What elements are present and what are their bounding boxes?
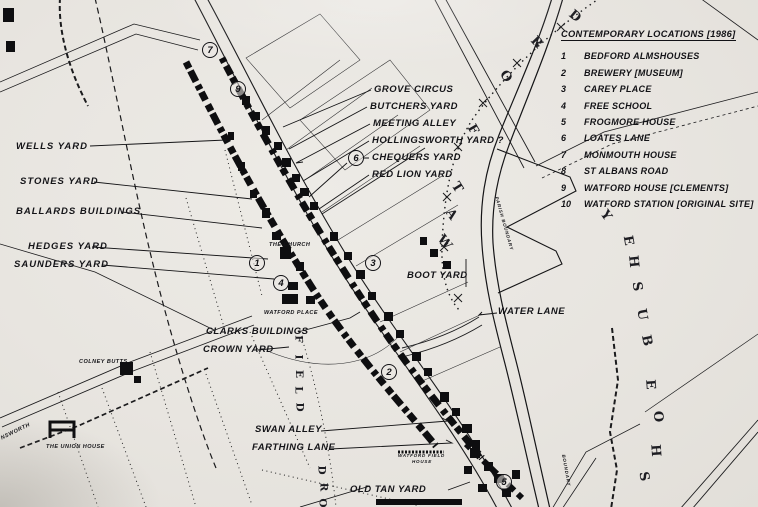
legend: CONTEMPORARY LOCATIONS [1986] 1BEDFORD A…	[561, 24, 758, 209]
legend-rows: 1BEDFORD ALMSHOUSES 2BREWERY [MUSEUM] 3C…	[561, 45, 758, 209]
label-union-house: THE UNION HOUSE	[46, 444, 105, 450]
legend-item-label: WATFORD STATION [ORIGINAL SITE]	[584, 199, 758, 209]
label-farthing-lane: FARTHING LANE	[252, 442, 335, 453]
legend-item: 6LOATES LANE	[561, 127, 758, 143]
legend-item-label: ST ALBANS ROAD	[584, 166, 758, 176]
label-meeting-alley: MEETING ALLEY	[373, 118, 456, 129]
label-saunders-yard: SAUNDERS YARD	[14, 259, 109, 270]
label-water-lane: WATER LANE	[498, 306, 565, 317]
map-letter-field-i: I	[292, 355, 304, 360]
legend-item-number: 2	[561, 68, 584, 78]
legend-item-label: CAREY PLACE	[584, 84, 758, 94]
legend-title: CONTEMPORARY LOCATIONS [1986]	[561, 29, 736, 41]
marker-circled-1: 1	[249, 255, 265, 271]
map-letter-ord-d: D	[316, 465, 328, 474]
marker-circled-2: 2	[381, 364, 397, 380]
label-boot-yard: BOOT YARD	[407, 270, 468, 281]
legend-item: 2BREWERY [MUSEUM]	[561, 61, 758, 77]
legend-item-label: MONMOUTH HOUSE	[584, 150, 758, 160]
map-letter-ord-o: O	[317, 498, 329, 507]
map-letter-bushey-h: H	[625, 255, 641, 269]
legend-item-number: 3	[561, 84, 584, 94]
legend-item-number: 8	[561, 166, 584, 176]
label-chequers-yard: CHEQUERS YARD	[372, 152, 461, 163]
legend-item: 4FREE SCHOOL	[561, 94, 758, 110]
label-watford-field: WATFORD FIELD	[398, 453, 445, 458]
legend-item-label: BREWERY [MUSEUM]	[584, 68, 758, 78]
legend-item-label: FREE SCHOOL	[584, 101, 758, 111]
legend-item: 1BEDFORD ALMSHOUSES	[561, 45, 758, 61]
label-butchers-yard: BUTCHERS YARD	[370, 101, 458, 112]
legend-item: 3CAREY PLACE	[561, 78, 758, 94]
label-watford-place: WATFORD PLACE	[264, 310, 318, 316]
legend-item-label: BEDFORD ALMSHOUSES	[584, 51, 758, 61]
legend-item-label: FROGMORE HOUSE	[584, 117, 758, 127]
legend-item: 9WATFORD HOUSE [CLEMENTS]	[561, 176, 758, 192]
map-letter-shoe-o: O	[650, 411, 665, 423]
legend-item-number: 6	[561, 133, 584, 143]
label-red-lion-yard: RED LION YARD	[372, 169, 453, 180]
label-hollingsworth-yard: HOLLINGSWORTH YARD ?	[372, 135, 504, 146]
legend-item-number: 4	[561, 101, 584, 111]
label-the-church: THE CHURCH	[269, 242, 310, 248]
marker-circled-4: 4	[273, 275, 289, 291]
marker-circled-9: 9	[230, 81, 246, 97]
marker-circled-6: 6	[348, 150, 364, 166]
label-hedges-yard: HEDGES YARD	[28, 241, 108, 252]
scanned-map: CONTEMPORARY LOCATIONS [1986] 1BEDFORD A…	[0, 0, 758, 507]
label-old-tan-yard: OLD TAN YARD	[350, 484, 426, 495]
legend-item-number: 7	[561, 150, 584, 160]
label-crown-yard: CROWN YARD	[203, 344, 274, 355]
marker-circled-7: 7	[202, 42, 218, 58]
marker-circled-5: 5	[496, 474, 512, 490]
map-letter-field-f: F	[293, 335, 305, 342]
legend-item-number: 1	[561, 51, 584, 61]
legend-item-label: LOATES LANE	[584, 133, 758, 143]
label-swan-alley: SWAN ALLEY	[255, 424, 322, 435]
label-colney-butts: COLNEY BUTTS	[79, 359, 128, 365]
legend-item: 8ST ALBANS ROAD	[561, 160, 758, 176]
legend-item-number: 10	[561, 199, 584, 209]
map-letter-field-d: D	[294, 402, 306, 411]
legend-item: 10WATFORD STATION [ORIGINAL SITE]	[561, 193, 758, 209]
legend-item: 5FROGMORE HOUSE	[561, 111, 758, 127]
legend-item-label: WATFORD HOUSE [CLEMENTS]	[584, 183, 758, 193]
marker-circled-3: 3	[365, 255, 381, 271]
map-letter-shoe-h: H	[647, 444, 663, 457]
label-stones-yard: STONES YARD	[20, 176, 99, 187]
map-letter-field-l: L	[293, 386, 305, 393]
label-wells-yard: WELLS YARD	[16, 141, 88, 152]
map-letter-shoe-e: E	[642, 379, 658, 390]
legend-item-number: 9	[561, 183, 584, 193]
legend-item: 7MONMOUTH HOUSE	[561, 143, 758, 159]
label-ballards-buildings: BALLARDS BUILDINGS	[16, 206, 141, 217]
map-letter-ord-r: R	[317, 483, 329, 492]
label-grove-circus: GROVE CIRCUS	[374, 84, 453, 95]
map-letter-field-e: E	[293, 370, 305, 378]
legend-item-number: 5	[561, 117, 584, 127]
label-watford-field-house: HOUSE	[412, 459, 432, 464]
